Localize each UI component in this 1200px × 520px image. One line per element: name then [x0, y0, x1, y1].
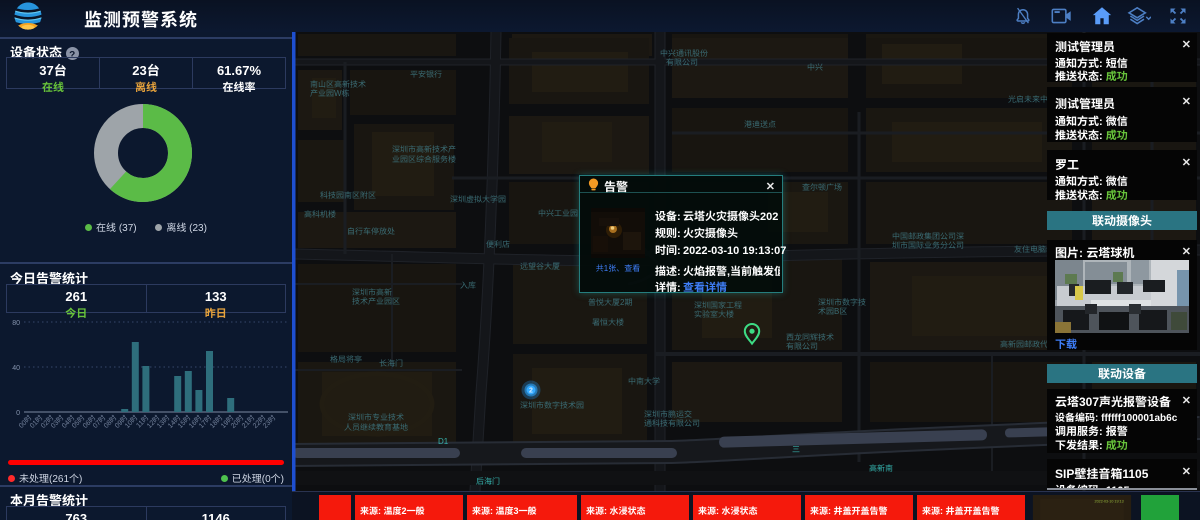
svg-text:普悦大厦2期: 普悦大厦2期 [588, 297, 632, 308]
svg-text:80: 80 [12, 318, 20, 328]
svg-text:术园B区: 术园B区 [818, 306, 847, 317]
svg-text:通科技有限公司: 通科技有限公司 [644, 418, 700, 429]
svg-text:查尔顿广场: 查尔顿广场 [802, 182, 842, 193]
svg-text:人员继续教育基地: 人员继续教育基地 [344, 422, 408, 433]
svg-text:2022-03-10 19:13: 2022-03-10 19:13 [1095, 499, 1124, 504]
svg-text:深圳市数字技术园: 深圳市数字技术园 [520, 400, 584, 411]
svg-text:科技园南区附区: 科技园南区附区 [320, 190, 376, 201]
svg-text:深圳虚拟大学园: 深圳虚拟大学园 [450, 194, 506, 205]
svg-text:圳市国际业务分公司: 圳市国际业务分公司 [892, 240, 964, 251]
svg-text:自行车停放处: 自行车停放处 [347, 226, 395, 237]
svg-text:40: 40 [12, 363, 20, 373]
svg-text:实验室大楼: 实验室大楼 [694, 309, 734, 320]
svg-text:中南大学: 中南大学 [628, 376, 660, 387]
svg-text:高科机楼: 高科机楼 [304, 209, 336, 220]
svg-text:0: 0 [16, 408, 20, 418]
svg-text:平安银行: 平安银行 [410, 69, 442, 80]
svg-text:业园区综合服务楼: 业园区综合服务楼 [392, 154, 456, 165]
svg-text:远望谷大厦: 远望谷大厦 [520, 261, 560, 272]
svg-text:有限公司: 有限公司 [786, 341, 818, 352]
svg-text:便利店: 便利店 [486, 239, 510, 250]
svg-text:三: 三 [792, 444, 800, 455]
svg-text:D1: D1 [438, 436, 449, 447]
svg-text:格局将亭: 格局将亭 [330, 354, 362, 365]
svg-text:中兴工业园: 中兴工业园 [538, 208, 578, 219]
svg-text:署恒大楼: 署恒大楼 [592, 317, 624, 328]
svg-text:技术产业园区: 技术产业园区 [352, 296, 400, 307]
svg-text:产业园W栋: 产业园W栋 [310, 88, 350, 99]
svg-text:高新南: 高新南 [869, 463, 893, 474]
svg-text:入库: 入库 [460, 280, 476, 291]
svg-text:港迪送点: 港迪送点 [744, 119, 776, 130]
svg-text:中兴: 中兴 [807, 62, 823, 73]
svg-text:有限公司: 有限公司 [666, 57, 698, 68]
svg-text:2: 2 [529, 386, 533, 396]
svg-text:后海门: 后海门 [476, 476, 500, 487]
svg-text:长海门: 长海门 [379, 358, 403, 369]
